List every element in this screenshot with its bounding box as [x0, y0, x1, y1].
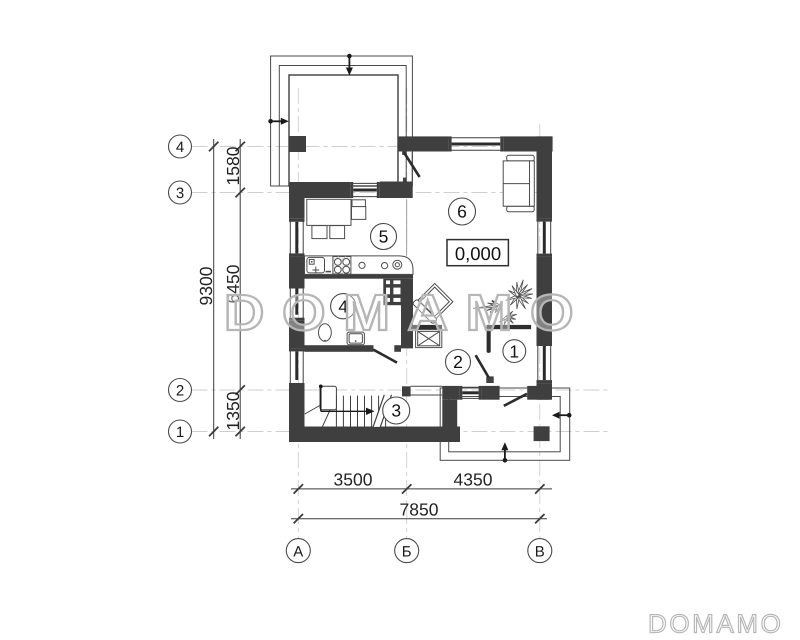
svg-text:5: 5 — [379, 227, 389, 247]
svg-text:3: 3 — [391, 401, 401, 421]
svg-text:6: 6 — [457, 202, 467, 222]
svg-text:1350: 1350 — [223, 391, 243, 430]
svg-text:1580: 1580 — [223, 146, 243, 185]
svg-text:3500: 3500 — [334, 470, 373, 490]
svg-text:7850: 7850 — [400, 500, 439, 520]
svg-text:В: В — [535, 543, 545, 560]
svg-text:4350: 4350 — [454, 470, 493, 490]
svg-text:2: 2 — [176, 383, 184, 400]
svg-text:0,000: 0,000 — [455, 243, 501, 264]
svg-text:3: 3 — [176, 185, 184, 202]
svg-text:1: 1 — [176, 424, 184, 441]
svg-text:2: 2 — [453, 352, 463, 372]
svg-text:9300: 9300 — [196, 266, 216, 305]
svg-text:DOMAMO: DOMAMO — [224, 284, 591, 341]
svg-text:А: А — [293, 543, 303, 560]
svg-text:Б: Б — [402, 543, 412, 560]
svg-text:DOMAMO: DOMAMO — [648, 609, 783, 639]
svg-text:1: 1 — [509, 341, 519, 361]
svg-text:4: 4 — [176, 139, 184, 156]
